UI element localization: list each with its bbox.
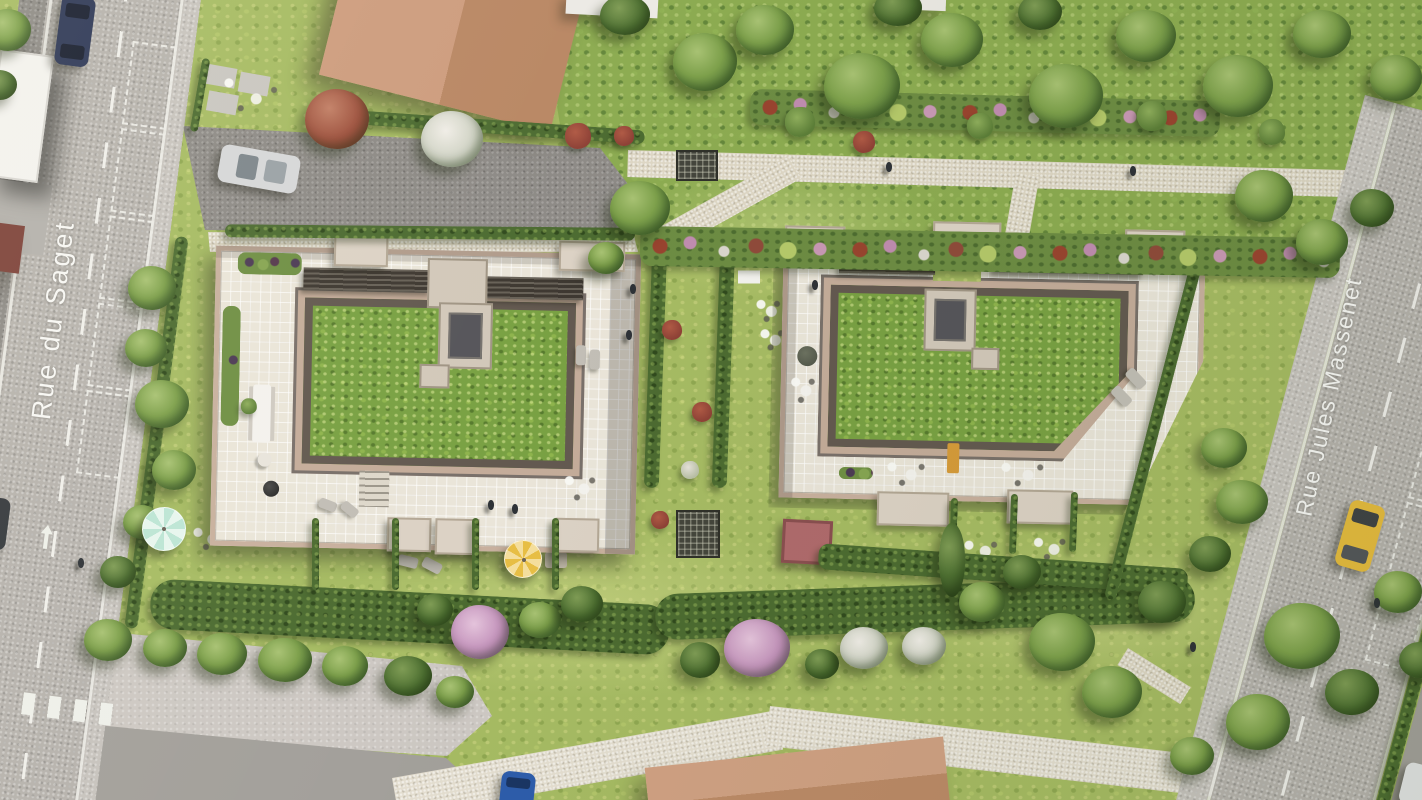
pedestrian [78,558,84,568]
tree [1029,613,1095,671]
car-windshield [1351,508,1380,528]
flower-bush [651,511,669,529]
flower-bush [853,131,875,153]
person-on-balcony [630,284,636,294]
roof-vent-box [419,364,449,389]
red-tree [305,89,369,149]
bush [785,107,815,137]
parasol-mint [142,507,186,551]
roof-planter [220,306,241,426]
tree [1374,571,1422,613]
terrace-shade [605,254,641,555]
tree [519,602,561,638]
tree [1296,219,1348,265]
tree [824,53,900,119]
skylight [438,302,493,369]
tree [417,594,453,626]
tree [805,649,839,679]
tree [152,450,196,490]
tree [1264,603,1340,669]
tree [680,642,720,678]
person-on-balcony [626,330,632,340]
roof-dining-set [879,458,932,489]
car-windshield [506,777,531,789]
ground-grille [676,510,720,558]
tree [1293,10,1351,58]
roof-dining-set [991,458,1052,489]
tree [143,629,187,667]
tree [197,633,247,675]
pink-blossom-tree [451,605,509,659]
pedestrian [886,162,892,172]
tree [1189,536,1231,572]
car-windshield [235,153,260,181]
person-on-terrace [488,500,494,510]
tree [128,266,176,310]
bush [1137,101,1167,131]
south-awning [877,491,950,527]
sun-lounger [590,349,600,369]
ground-grille [676,150,718,181]
tree [322,646,368,686]
tree [736,5,794,55]
entrance-canopy [334,234,389,267]
tree [384,656,432,696]
pergola [303,267,431,292]
white-blossom-tree [902,627,946,665]
tree [1170,737,1214,775]
terrace-stairs [359,471,390,508]
roof-vent-box [971,348,999,371]
roof-access-box [427,258,488,309]
tree [436,676,474,708]
tree [125,329,167,367]
tree [258,638,312,682]
skylight-glass [934,299,967,342]
tree [100,556,136,588]
tree [561,586,603,622]
pink-blossom-tree [724,619,790,677]
person-on-terrace [512,504,518,514]
tree [1029,64,1103,128]
tree [1203,55,1273,117]
white-blossom-tree [421,111,483,167]
patio-furniture [204,66,290,123]
tree [959,582,1005,622]
sun-lounger [576,345,586,365]
skylight-glass [448,312,483,359]
roof-dining-set [559,471,600,504]
flower-bush [614,126,634,146]
tree [1216,480,1268,524]
building-a [210,246,641,555]
tree [1082,666,1142,718]
tree [135,380,189,428]
car-blue [498,770,537,800]
tree [1138,581,1186,623]
pedestrian [1374,598,1380,608]
car-rear-window [263,160,287,185]
site-plan-aerial-view: Rue du Saget Rue Jules Massenet [0,0,1422,800]
tree [673,33,737,91]
tree [610,181,670,235]
tree [1226,694,1290,750]
roof-planter [238,252,302,275]
road-direction-arrow [43,529,50,549]
flower-bush [681,461,699,479]
cypress-tree [939,523,965,597]
car-windshield [65,3,91,20]
ladder [947,443,960,473]
pedestrian [1130,166,1136,176]
bush [967,113,993,139]
tree [588,242,624,274]
pergola [483,276,583,300]
flower-bush [692,402,712,422]
garden-divider [552,518,559,590]
south-awning [555,518,600,553]
garden-divider [392,518,399,590]
tree [1235,170,1293,222]
tree [1201,428,1247,468]
garden-divider [312,518,319,590]
roof-seating [788,372,817,407]
tree [921,13,983,67]
white-blossom-tree [840,627,888,669]
car-rear-window [59,43,85,60]
tree [1116,10,1176,62]
tree [1370,55,1422,101]
roof-planter [839,467,873,480]
car-rear-window [1340,544,1369,564]
tree [1350,189,1394,227]
flower-bush [662,320,682,340]
skylight [923,289,976,352]
parasol-yellow [504,540,542,578]
potted-plant [241,398,257,414]
flower-bush [565,123,591,149]
pedestrian [1190,642,1196,652]
tree [1325,669,1379,715]
tree [1003,555,1041,589]
person-on-terrace [812,280,818,290]
garden-divider [472,518,479,590]
bush [1259,119,1285,145]
roof-dining-table [252,384,271,442]
tree [84,619,132,661]
